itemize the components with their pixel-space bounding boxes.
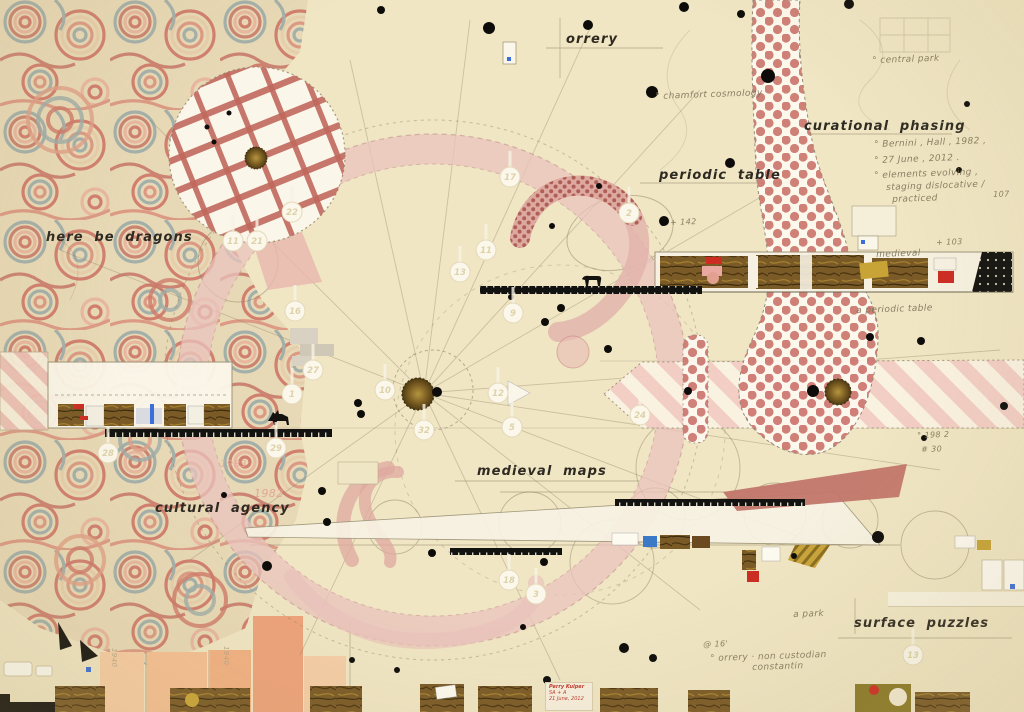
svg-text:29: 29 — [270, 444, 282, 454]
ink-dot — [262, 561, 272, 571]
svg-text:12: 12 — [492, 389, 504, 399]
handwritten-note: 1940 — [222, 646, 230, 665]
ink-dot — [649, 654, 657, 662]
label-periodic-table: periodic table — [659, 168, 781, 183]
svg-text:32: 32 — [418, 426, 430, 436]
handwritten-note: + 142 — [670, 217, 697, 227]
svg-text:28: 28 — [102, 449, 114, 459]
handwritten-note: medieval — [876, 248, 921, 260]
ink-dot — [619, 643, 629, 653]
candy-stripe-band — [0, 352, 48, 430]
handwritten-note: a park — [793, 609, 824, 620]
ink-dot — [660, 220, 666, 226]
handwritten-note: @ 16' — [703, 639, 728, 649]
label-surface-puzzles: surface puzzles — [854, 616, 989, 631]
ink-dot — [737, 10, 745, 18]
label-curational-phasing: curational phasing — [804, 119, 966, 134]
ink-dot — [583, 20, 593, 30]
label-here-be-dragons: here be dragons — [46, 230, 193, 245]
handwritten-note: constantin — [752, 661, 804, 673]
ink-dot — [540, 558, 548, 566]
svg-text:11: 11 — [480, 246, 492, 256]
periodic-table-strip — [655, 252, 1013, 292]
svg-text:9: 9 — [510, 309, 516, 319]
svg-text:27: 27 — [307, 366, 319, 376]
ink-dot — [354, 399, 362, 407]
ink-dot — [483, 22, 495, 34]
artwork-canvas: 2217211131691012532242712829112118313 or… — [0, 0, 1024, 712]
ink-dot — [807, 385, 819, 397]
svg-text:24: 24 — [634, 411, 646, 421]
ink-dot — [964, 101, 970, 107]
handwritten-note: 1940 — [110, 648, 118, 667]
handwritten-note: 107 — [993, 189, 1010, 199]
ink-dot — [557, 304, 565, 312]
ink-dot — [549, 223, 555, 229]
ink-dot — [227, 111, 232, 116]
drawing-svg: 2217211131691012532242712829112118313 — [0, 0, 1024, 712]
svg-text:11: 11 — [227, 237, 239, 247]
ink-dot — [596, 183, 602, 189]
svg-text:13: 13 — [907, 651, 919, 661]
svg-text:2: 2 — [626, 209, 632, 219]
label-orrery: orrery — [566, 32, 618, 47]
label-medieval-maps: medieval maps — [477, 464, 607, 479]
svg-text:18: 18 — [503, 576, 515, 586]
handwritten-note: practiced — [892, 193, 938, 205]
ink-dot — [1000, 402, 1008, 410]
ink-dot — [604, 345, 612, 353]
label-cultural-agency: cultural agency — [155, 501, 290, 516]
ink-dot — [377, 6, 385, 14]
ink-dot — [205, 125, 210, 130]
svg-text:3: 3 — [533, 590, 539, 600]
ink-dot — [761, 69, 775, 83]
ink-dot — [791, 553, 797, 559]
ink-dot — [541, 318, 549, 326]
ink-dot — [349, 657, 355, 663]
ink-dot — [917, 337, 925, 345]
ink-dot — [432, 387, 442, 397]
svg-text:13: 13 — [454, 268, 466, 278]
ink-dot — [428, 549, 436, 557]
signature-card: Perry Kulper SA + A 21 June, 2012 — [545, 682, 593, 711]
handwritten-note: 1983 — [220, 459, 247, 470]
ink-dot — [684, 387, 692, 395]
handwritten-note: + 103 — [936, 237, 963, 247]
svg-text:16: 16 — [289, 307, 301, 317]
ink-dot — [394, 667, 400, 673]
ink-dot — [318, 487, 326, 495]
ink-dot — [357, 410, 365, 418]
handwritten-note: 1982 — [254, 487, 284, 500]
svg-text:17: 17 — [504, 173, 516, 183]
ink-dot — [520, 624, 526, 630]
ink-dot — [725, 158, 735, 168]
ink-dot — [212, 140, 217, 145]
svg-text:5: 5 — [509, 423, 515, 433]
ink-dot — [679, 2, 689, 12]
ink-dot — [221, 492, 227, 498]
ink-dot — [323, 518, 331, 526]
svg-text:21: 21 — [251, 237, 263, 247]
svg-text:10: 10 — [379, 386, 391, 396]
ink-dot — [872, 531, 884, 543]
svg-text:1: 1 — [289, 390, 295, 400]
signature-date: 21 June, 2012 — [549, 696, 589, 702]
ink-dot — [866, 333, 874, 341]
handwritten-note: # 30 — [921, 444, 942, 454]
handwritten-note: ° 198 2 — [917, 430, 950, 440]
svg-text:22: 22 — [286, 208, 298, 218]
